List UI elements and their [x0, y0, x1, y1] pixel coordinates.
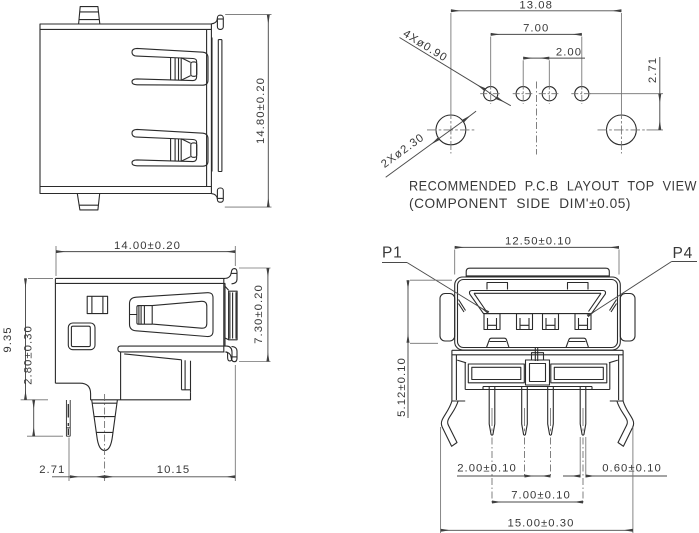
- svg-text:7.00±0.10: 7.00±0.10: [511, 489, 571, 501]
- svg-text:2.00±0.10: 2.00±0.10: [457, 463, 517, 475]
- svg-text:10.15: 10.15: [157, 464, 191, 476]
- svg-text:14.80±0.20: 14.80±0.20: [255, 77, 267, 144]
- svg-text:0.60±0.10: 0.60±0.10: [602, 463, 662, 475]
- svg-text:2.00: 2.00: [556, 46, 582, 58]
- svg-text:7.00: 7.00: [523, 23, 549, 35]
- svg-text:9.35: 9.35: [2, 326, 14, 352]
- svg-text:P1: P1: [382, 245, 403, 262]
- svg-text:15.00±0.30: 15.00±0.30: [508, 518, 575, 530]
- svg-text:2.71: 2.71: [647, 57, 659, 83]
- svg-text:P4: P4: [673, 245, 694, 262]
- svg-text:7.30±0.20: 7.30±0.20: [253, 284, 265, 344]
- svg-text:RECOMMENDED P.C.B LAYOUT TOP V: RECOMMENDED P.C.B LAYOUT TOP VIEW: [409, 179, 697, 194]
- svg-text:14.00±0.20: 14.00±0.20: [114, 240, 181, 252]
- svg-text:13.08: 13.08: [519, 0, 553, 11]
- svg-text:5.12±0.10: 5.12±0.10: [396, 357, 408, 417]
- svg-text:2.80±0.30: 2.80±0.30: [23, 325, 35, 385]
- svg-text:(COMPONENT SIDE DIM'±0.05): (COMPONENT SIDE DIM'±0.05): [409, 196, 631, 211]
- svg-text:2.71: 2.71: [39, 464, 65, 476]
- svg-text:12.50±0.10: 12.50±0.10: [505, 236, 572, 248]
